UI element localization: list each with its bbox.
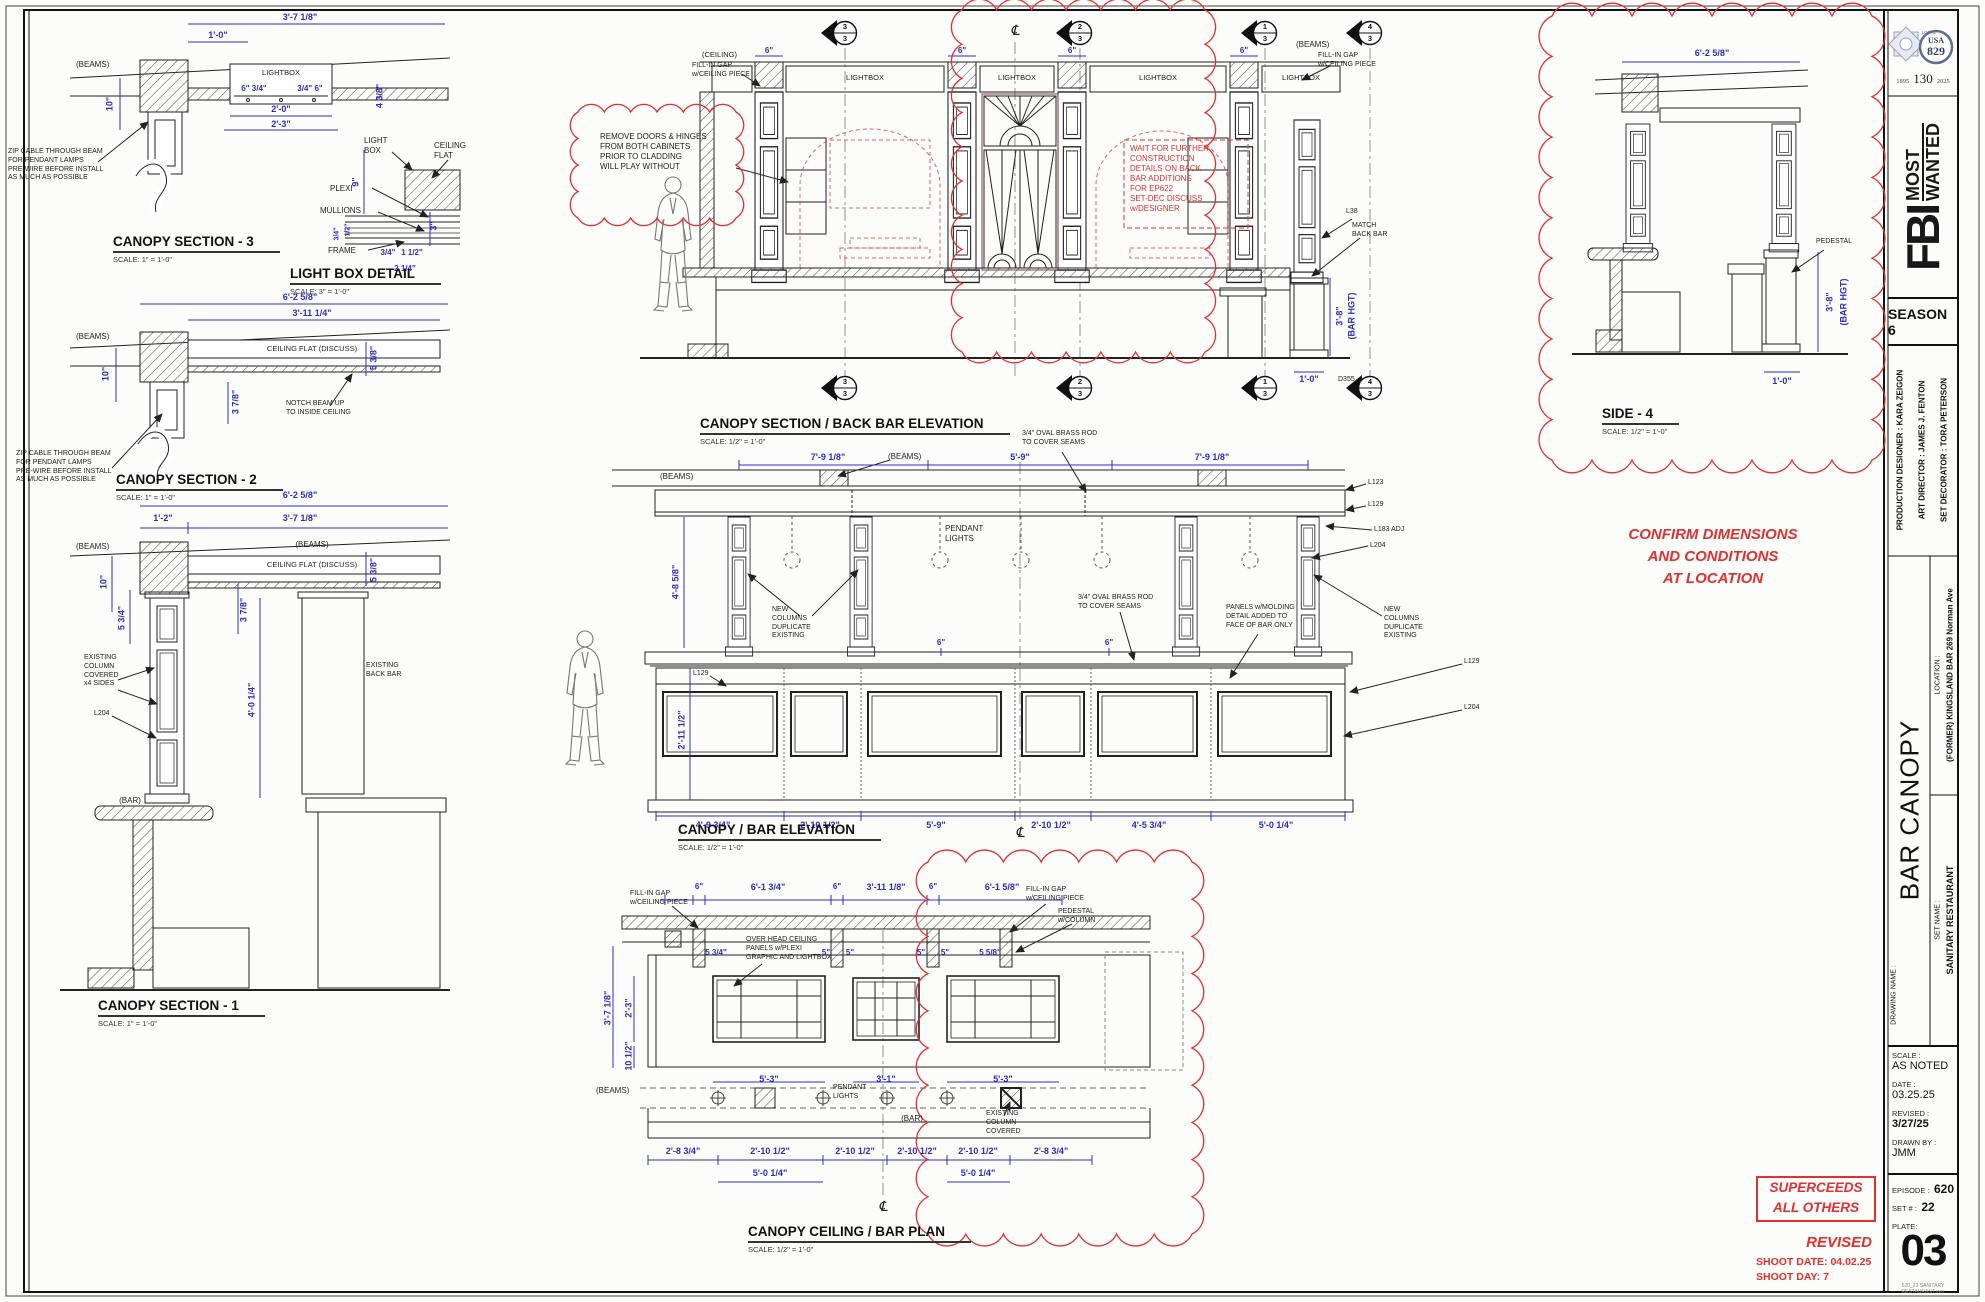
union-years: 1895 130 2025: [1888, 70, 1958, 88]
bar-elevation-drawing: [612, 452, 1462, 812]
set-number-label: SET # :: [1892, 1204, 1917, 1213]
drafting-sheet: 3'-7 1/8" 1'-0" (BEAMS) 10" LIGHTBOX 6" …: [0, 0, 1985, 1302]
dim-label: 3'-11 1/4": [293, 308, 332, 319]
union-829-label: 829: [1927, 44, 1945, 59]
dim-label: 1'-2": [153, 513, 172, 524]
view-scale: SCALE: 1" = 1'-0": [98, 1019, 157, 1028]
most-text: MOST: [1904, 123, 1924, 201]
dim-label: 10": [100, 367, 111, 381]
light-box-detail-drawing: [345, 150, 460, 250]
human-figure: [566, 631, 604, 765]
note-light-box: LIGHT BOX: [364, 136, 388, 156]
dim-label: 5": [846, 948, 854, 958]
view-scale: SCALE: 1/2" = 1'-0": [678, 843, 743, 852]
lightbox-label: LIGHTBOX: [1282, 73, 1320, 82]
dim-label: 5'-9": [1010, 452, 1029, 463]
dim-label: 1'-0": [1772, 376, 1791, 387]
dim-label: 6": [929, 882, 937, 892]
dim-label: 6'-2 5/8": [283, 292, 317, 303]
dim-label: 2'-10 1/2": [958, 1146, 997, 1157]
note-ceiling-flat: CEILING FLAT (DISCUSS): [267, 560, 357, 569]
beams-label: (BEAMS): [1296, 40, 1329, 50]
note-pendant-lights: PENDANT LIGHTS: [945, 524, 983, 544]
marker-number: 4: [1368, 377, 1372, 386]
lightbox-label: LIGHTBOX: [846, 73, 884, 82]
note-pedestal-column: PEDESTAL w/COLUMN: [1058, 908, 1095, 926]
note-pedestal: PEDESTAL: [1816, 238, 1852, 247]
lightbox-label: LIGHTBOX: [1139, 73, 1177, 82]
marker-number: 3: [1263, 34, 1267, 43]
note-ceiling-flat: CEILING FLAT (DISCUSS): [267, 344, 357, 353]
note-overhead-panels: OVER HEAD CEILING PANELS w/PLEXI GRAPHIC…: [746, 936, 832, 962]
note-brass-rod: 3/4" OVAL BRASS ROD TO COVER SEAMS: [1022, 430, 1097, 448]
dim-label: 4'-8 5/8": [670, 565, 681, 599]
marker-number: 3: [843, 22, 847, 31]
union-year-end: 2025: [1937, 78, 1950, 85]
view-title-ceiling-bar-plan: CANOPY CEILING / BAR PLAN: [748, 1224, 971, 1243]
ceiling-label: (CEILING): [702, 50, 737, 59]
dim-label: 5 3/4": [705, 948, 727, 958]
back-bar-elevation-centerlines: [845, 42, 1370, 380]
view-title-canopy-section-1: CANOPY SECTION - 1: [98, 998, 265, 1017]
human-figure: [654, 177, 692, 311]
bar-elevation-dims: [656, 460, 1345, 821]
note-ceiling-flat: CEILING FLAT: [434, 141, 466, 161]
dim-label: 2'-10 1/2": [897, 1146, 936, 1157]
season-box: SEASON 6: [1888, 298, 1958, 345]
beams-label: (BEAMS): [660, 472, 693, 482]
credit-art-director: ART DIRECTOR : JAMES J. FENTON: [1918, 381, 1927, 520]
revised-value: 3/27/25: [1892, 1118, 1929, 1130]
note-frame: FRAME: [328, 246, 356, 256]
revised-label: REVISED :: [1892, 1109, 1929, 1118]
drawn-by-value: JMM: [1892, 1147, 1936, 1159]
dim-label: 3 7/8": [238, 598, 249, 622]
note-existing-column-covered: EXISTING COLUMN COVERED: [986, 1110, 1021, 1136]
dim-label: (BAR HGT): [1838, 279, 1849, 326]
drawn-by-field: DRAWN BY : JMM: [1892, 1138, 1936, 1159]
marker-number: 4: [1368, 22, 1372, 31]
back-bar-elevation-drawing: [640, 62, 1360, 358]
shoot-date: SHOOT DATE: 04.02.25: [1756, 1256, 1871, 1268]
dim-label: 5'-3": [759, 1074, 778, 1085]
dim-label: 5 5/8": [979, 948, 1001, 958]
centerline-symbol: ℄: [1011, 22, 1020, 39]
dim-label: 6'-2 5/8": [1695, 48, 1729, 59]
ref-l204: L204: [94, 710, 110, 719]
dim-label: 2'-8 3/4": [666, 1146, 700, 1157]
ref-l38: L38: [1346, 208, 1358, 217]
dim-label: 7'-9 1/8": [1195, 452, 1229, 463]
lightbox-label: LIGHTBOX: [998, 73, 1036, 82]
marker-number: 3: [1078, 389, 1082, 398]
canopy-section-2-drawing: [70, 330, 450, 478]
scale-label: SCALE :: [1892, 1051, 1948, 1060]
set-number-field: SET # : 22: [1892, 1198, 1935, 1216]
fbi-most-wanted-logo: FBI MOST WANTED: [1896, 123, 1950, 271]
note-zip-cable: ZIP CABLE THROUGH BEAM FOR PENDANT LAMPS…: [16, 450, 112, 485]
dim-label: 10 1/2": [623, 1041, 634, 1070]
dim-label: 2'-0": [271, 104, 290, 115]
revised-stamp: REVISED: [1788, 1234, 1872, 1251]
dim-label: 3'-7 1/8": [602, 991, 613, 1025]
dim-label: 2'-3": [623, 998, 634, 1017]
centerline-symbol: ℄: [879, 1198, 888, 1215]
dim-label: 5 3/4": [116, 606, 127, 630]
side-4-drawing: [1572, 70, 1848, 354]
marker-number: 3: [1263, 389, 1267, 398]
marker-number: 1: [1263, 22, 1267, 31]
dim-label: 5 3/8": [368, 558, 379, 582]
note-existing-column: EXISTING COLUMN COVERED x4 SIDES: [84, 654, 119, 689]
marker-number: 2: [1078, 22, 1082, 31]
credit-production-designer: PRODUCTION DESIGNER : KARA ZEIGON: [1896, 370, 1905, 531]
beams-label: (BEAMS): [295, 540, 328, 550]
ref-l123: L123: [1368, 479, 1384, 488]
dim-label: 5 3/8": [368, 346, 379, 370]
union-local-number: 130: [1913, 71, 1933, 86]
shoot-day: SHOOT DAY: 7: [1756, 1271, 1829, 1283]
dim-label: 6'-2 5/8": [283, 490, 317, 501]
view-scale: SCALE: 1" = 1'-0": [113, 255, 172, 264]
dim-label: 5'-0 1/4": [1259, 820, 1293, 831]
view-title-side-4: SIDE - 4: [1602, 406, 1679, 425]
dim-label: 3'-11 1/8": [867, 882, 906, 893]
scale-value: AS NOTED: [1892, 1060, 1948, 1072]
ref-d355: D355: [1338, 376, 1355, 385]
marker-number: 1: [1263, 377, 1267, 386]
dim-label: 10": [98, 575, 109, 589]
dim-label: 1/2": [345, 223, 354, 236]
marker-number: 3: [843, 389, 847, 398]
marker-number: 2: [1078, 377, 1082, 386]
dim-label: 6": [1105, 638, 1113, 648]
marker-number: 3: [1368, 34, 1372, 43]
revised-field: REVISED : 3/27/25: [1892, 1109, 1929, 1130]
dim-label: 2'-8 3/4": [1034, 1146, 1068, 1157]
set-name-value: SANITARY RESTAURANT: [1945, 866, 1955, 975]
superceeds-line1: SUPERCEEDS: [1758, 1178, 1874, 1198]
centerline-symbol: ℄: [1016, 824, 1025, 841]
plate-number-value: 03: [1901, 1226, 1946, 1275]
dim-label: 10": [104, 97, 115, 111]
marker-number: 3: [1368, 389, 1372, 398]
set-name-label: SET NAME :: [1935, 900, 1942, 940]
beams-label: (BEAMS): [596, 1086, 629, 1096]
linework-svg: [0, 0, 1985, 1302]
dim-label: 5": [941, 948, 949, 958]
dim-label: 6": [833, 882, 841, 892]
dim-label: 1'-0": [208, 30, 227, 41]
note-match-back-bar: MATCH BACK BAR: [1352, 222, 1387, 240]
dim-label: 6": [937, 638, 945, 648]
beams-label: (BEAMS): [888, 452, 921, 462]
note-new-columns: NEW COLUMNS DUPLICATE EXISTING: [772, 606, 811, 641]
dim-label: 5'-9": [926, 820, 945, 831]
note-fill-in-gap: FILL-IN GAP w/CEILING PIECE: [1318, 52, 1376, 70]
view-title-canopy-section-3: CANOPY SECTION - 3: [113, 234, 280, 253]
set-number-value: 22: [1921, 1200, 1934, 1214]
dim-label: 4'-0 1/4": [246, 683, 257, 717]
drawing-name-label: DRAWING NAME :: [1891, 965, 1898, 1025]
dim-label: 3'-7 1/8": [283, 12, 317, 23]
ref-l129: L129: [693, 670, 709, 679]
view-scale: SCALE: 1" = 1'-0": [116, 493, 175, 502]
dim-label: 6": [1068, 46, 1076, 56]
bar-label: (BAR): [119, 796, 141, 806]
dim-label: 3/4": [334, 227, 343, 240]
note-brass-rod: 3/4" OVAL BRASS ROD TO COVER SEAMS: [1078, 594, 1153, 612]
note-panels-molding: PANELS w/MOLDING DETAIL ADDED TO FACE OF…: [1226, 604, 1295, 630]
dim-label: 2'-11 1/2": [676, 711, 687, 750]
note-pendant-lights: PENDANT LIGHTS: [833, 1084, 866, 1102]
plate-number: 03: [1888, 1226, 1958, 1276]
dim-label: 6": [695, 882, 703, 892]
date-value: 03.25.25: [1892, 1089, 1935, 1101]
beams-label: (BEAMS): [76, 60, 109, 70]
dim-label: 6": [765, 46, 773, 56]
note-fill-in-gap: FILL-IN GAP w/CEILING PIECE: [1026, 886, 1084, 904]
dim-label: 4'-5 3/4": [1132, 820, 1166, 831]
dim-label: 3'-8": [1334, 306, 1345, 325]
note-fill-in-gap: FILL-IN GAP w/CEILING PIECE: [692, 62, 750, 80]
confirm-dimensions-stamp: CONFIRM DIMENSIONS AND CONDITIONS AT LOC…: [1608, 524, 1818, 589]
ref-l204: L204: [1370, 542, 1386, 551]
dim-label: 5": [822, 948, 830, 958]
note-notch-beam: NOTCH BEAM UP TO INSIDE CEILING: [286, 400, 351, 418]
dim-label: 6": [958, 46, 966, 56]
view-title-back-bar-elevation: CANOPY SECTION / BACK BAR ELEVATION: [700, 416, 1010, 435]
wanted-text: WANTED: [1924, 123, 1942, 201]
dim-label: 3/4" 6": [297, 84, 322, 94]
scale-field: SCALE : AS NOTED: [1892, 1051, 1948, 1072]
note-new-columns: NEW COLUMNS DUPLICATE EXISTING: [1384, 606, 1423, 641]
file-name: 620_22 SANITARY RESTAURANT.vwx: [1888, 1283, 1958, 1295]
dim-label: 5'-0 1/4": [753, 1168, 787, 1179]
ref-l129: L129: [1368, 501, 1384, 510]
dim-label: (BAR HGT): [1346, 293, 1357, 340]
credit-set-decorator: SET DECORATOR : TORA PETERSON: [1940, 378, 1949, 522]
dim-label: 2'-10 1/2": [750, 1146, 789, 1157]
dim-label: 5": [917, 948, 925, 958]
dim-label: 7'-9 1/8": [811, 452, 845, 463]
beams-label: (BEAMS): [76, 542, 109, 552]
ref-l183: L183 ADJ: [1374, 526, 1404, 535]
union-local-label: LOCAL: [1922, 30, 1937, 36]
dim-label: 3": [428, 221, 439, 230]
drawing-name-value: BAR CANOPY: [1895, 720, 1926, 901]
date-field: DATE : 03.25.25: [1892, 1080, 1935, 1101]
dim-label: 3'-1": [876, 1074, 895, 1085]
marker-number: 3: [843, 377, 847, 386]
view-title-light-box-detail: LIGHT BOX DETAIL: [290, 266, 441, 285]
dim-label: 6" 3/4": [241, 84, 266, 94]
view-title-canopy-section-2: CANOPY SECTION - 2: [116, 472, 283, 491]
lightbox-label: LIGHTBOX: [262, 68, 300, 77]
ref-l204: L204: [1464, 704, 1480, 713]
dim-label: 4 3/8": [374, 84, 385, 108]
marker-number: 3: [1078, 34, 1082, 43]
episode-value: 620: [1934, 1182, 1954, 1196]
marker-number: 3: [843, 34, 847, 43]
dim-label: 5'-3": [993, 1074, 1012, 1085]
location-label: LOCATION :: [1935, 655, 1942, 694]
ref-l129: L129: [1464, 658, 1480, 667]
episode-label: EPISODE :: [1892, 1186, 1930, 1195]
dim-label: 6'-1 3/4": [751, 882, 785, 893]
dim-label: 2'-10 1/2": [1031, 820, 1070, 831]
view-scale: SCALE: 1/2" = 1'-0": [748, 1245, 813, 1254]
union-year-start: 1895: [1896, 78, 1909, 85]
drawn-by-label: DRAWN BY :: [1892, 1138, 1936, 1147]
note-zip-cable: ZIP CABLE THROUGH BEAM FOR PENDANT LAMPS…: [8, 148, 104, 183]
dim-label: 3/4": [381, 248, 396, 258]
date-label: DATE :: [1892, 1080, 1935, 1089]
location-value: (FORMER) KINGSLAND BAR 269 Norman Ave: [1946, 588, 1955, 762]
plan-drawing: [622, 904, 1183, 1138]
beams-label: (BEAMS): [76, 332, 109, 342]
episode-field: EPISODE : 620: [1892, 1180, 1954, 1198]
bar-label: (BAR): [901, 1114, 923, 1124]
dim-label: 6": [1240, 46, 1248, 56]
dim-label: 1'-0": [1299, 374, 1318, 385]
view-title-bar-elevation: CANOPY / BAR ELEVATION: [678, 822, 881, 841]
superceeds-stamp-box: SUPERCEEDS ALL OTHERS: [1756, 1176, 1876, 1222]
season-label: SEASON 6: [1888, 306, 1958, 338]
note-wait-construction: WAIT FOR FURTHER CONSTRUCTION DETAILS ON…: [1130, 144, 1209, 214]
view-scale: SCALE: 1/2" = 1'-0": [700, 437, 765, 446]
dim-label: 2'-3": [271, 119, 290, 130]
dim-label: 3'-8": [1824, 292, 1835, 311]
superceeds-line2: ALL OTHERS: [1758, 1198, 1874, 1218]
note-remove-doors: REMOVE DOORS & HINGES FROM BOTH CABINETS…: [600, 132, 707, 172]
dim-label: 2'-10 1/2": [835, 1146, 874, 1157]
fbi-logo-text: FBI: [1896, 206, 1950, 271]
dim-label: 5'-0 1/4": [961, 1168, 995, 1179]
dim-label: 1 1/2": [401, 248, 423, 258]
note-mullions: MULLIONS: [320, 206, 361, 216]
dim-label: 6'-1 5/8": [985, 882, 1019, 893]
note-plexi: PLEXI: [330, 184, 353, 194]
canopy-section-3-drawing: [70, 58, 450, 212]
note-existing-back-bar: EXISTING BACK BAR: [366, 662, 401, 680]
dim-label: 3 7/8": [230, 390, 241, 414]
dim-label: 3'-7 1/8": [283, 513, 317, 524]
view-scale: SCALE: 1/2" = 1'-0": [1602, 427, 1667, 436]
note-fill-in-gap: FILL-IN GAP w/CEILING PIECE: [630, 890, 688, 908]
